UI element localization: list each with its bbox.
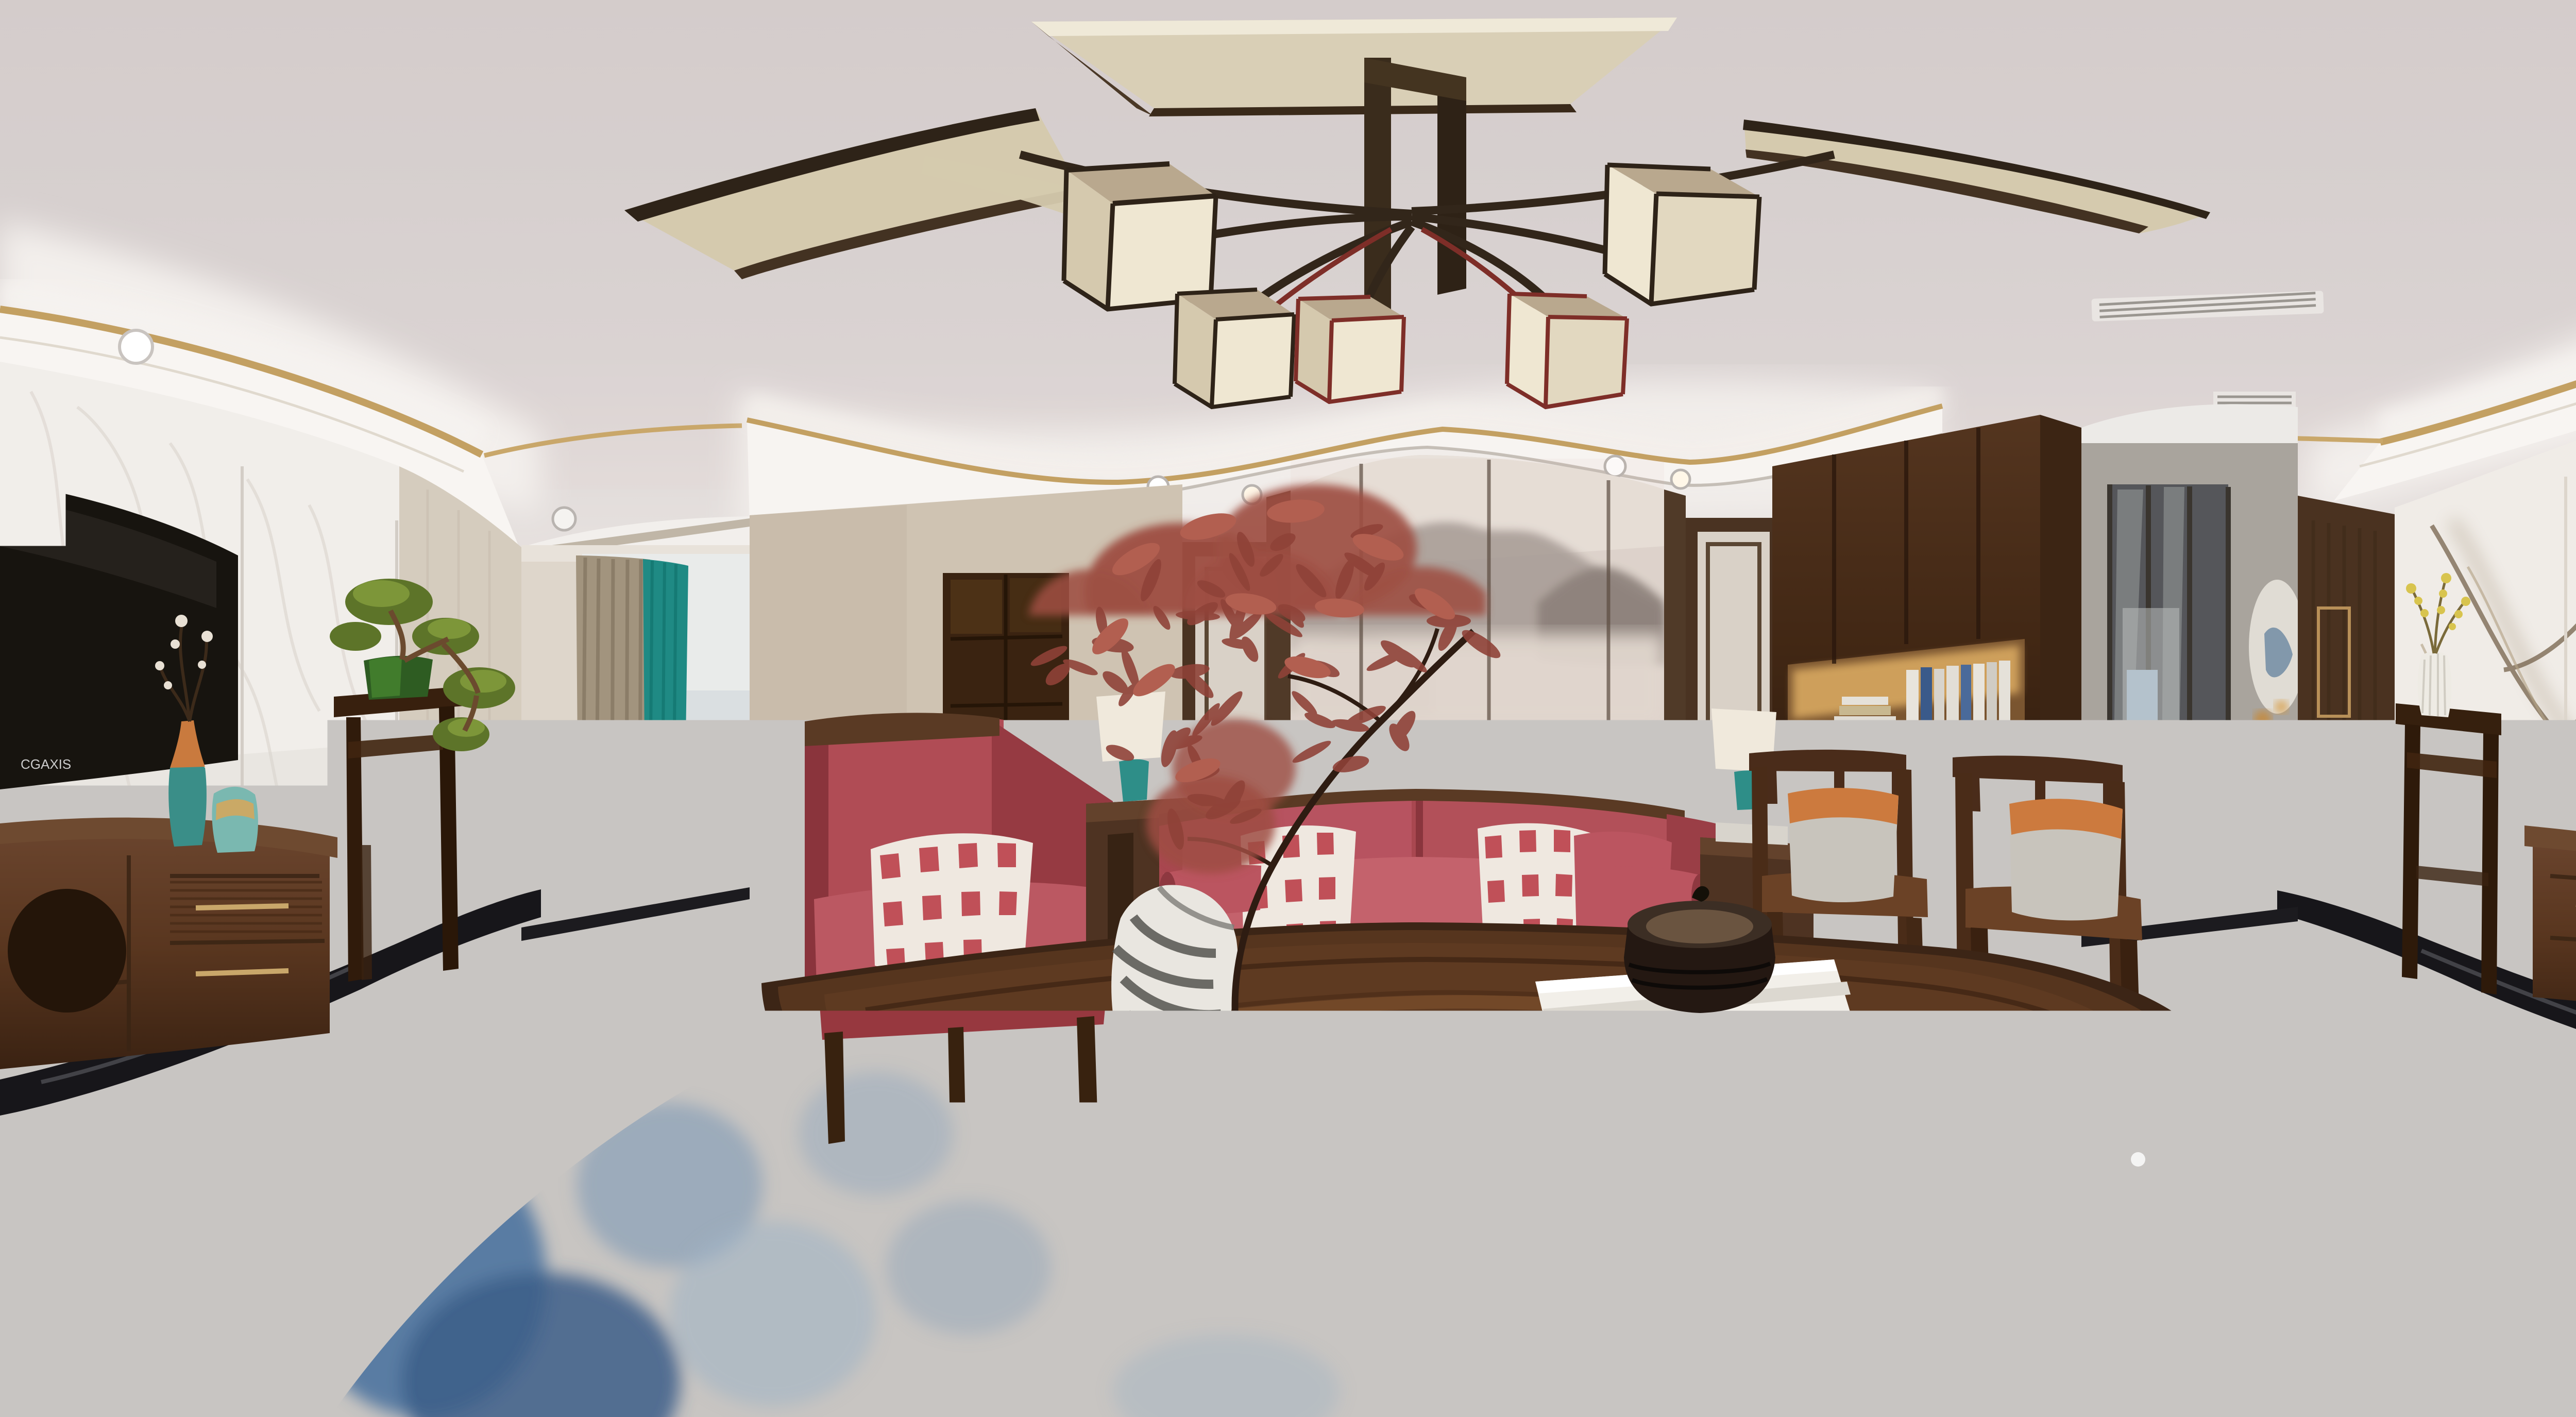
svg-text:CGAXIS: CGAXIS [21,756,71,772]
